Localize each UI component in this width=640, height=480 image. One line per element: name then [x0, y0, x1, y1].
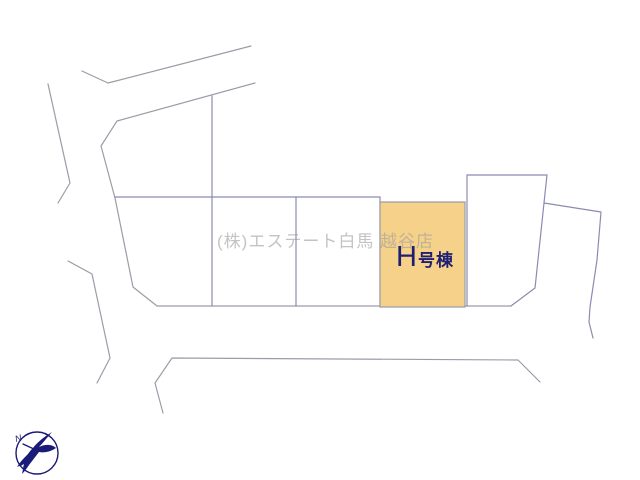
road-edge-left-lower	[68, 261, 110, 383]
parcel-far-right-outline	[544, 203, 601, 338]
highlighted-parcel-label: H 号棟	[396, 243, 454, 272]
plot-layout-map: N (株)エステート白馬 越谷店 H 号棟	[0, 0, 640, 480]
road-edge-bottom	[155, 358, 540, 413]
parcel-right-tall-outline	[467, 175, 547, 306]
road-edge-left-upper	[48, 84, 70, 203]
parcel-label-suffix: 号棟	[418, 246, 454, 271]
compass: N	[14, 432, 58, 474]
road-edge-top	[82, 46, 251, 83]
parcel-label-prefix: H	[396, 243, 417, 272]
